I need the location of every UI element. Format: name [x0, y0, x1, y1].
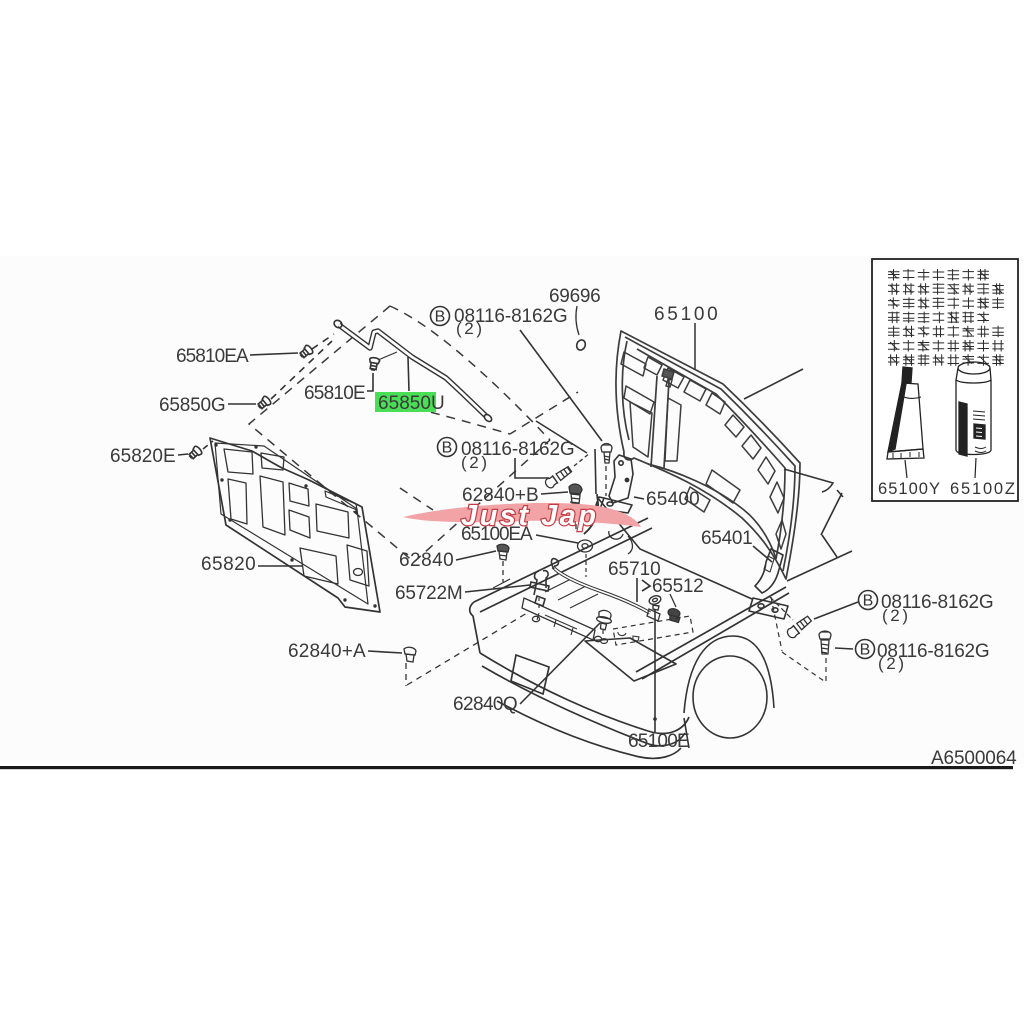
svg-text:62840+B: 62840+B [462, 485, 539, 506]
svg-text:65100Y: 65100Y [878, 480, 940, 498]
svg-text:62840+A: 62840+A [288, 641, 366, 662]
svg-text:65810EA: 65810EA [176, 346, 249, 367]
svg-text:B: B [863, 593, 874, 610]
svg-text:62840: 62840 [399, 550, 454, 571]
svg-text:B: B [435, 309, 446, 326]
svg-text:A6500064: A6500064 [931, 748, 1017, 769]
svg-text:65401: 65401 [701, 528, 753, 549]
svg-text:(2): (2) [882, 606, 908, 625]
svg-text:62840Q: 62840Q [453, 694, 518, 715]
svg-text:65810E: 65810E [304, 383, 366, 404]
svg-text:65512: 65512 [652, 576, 704, 597]
svg-text:B: B [860, 642, 871, 659]
svg-text:(2): (2) [461, 453, 487, 472]
svg-text:69696: 69696 [549, 286, 601, 307]
svg-text:65100E: 65100E [628, 731, 690, 752]
svg-text:B: B [442, 440, 453, 457]
svg-text:(2): (2) [456, 319, 482, 338]
svg-text:65100: 65100 [654, 304, 718, 325]
svg-text:65820: 65820 [201, 554, 256, 575]
svg-text:65722M: 65722M [395, 583, 463, 604]
svg-text:65400: 65400 [646, 489, 700, 510]
svg-text:65820E: 65820E [110, 446, 176, 467]
svg-text:(2): (2) [878, 654, 904, 673]
svg-text:65100EA: 65100EA [461, 524, 533, 545]
svg-text:65850U: 65850U [378, 393, 445, 414]
svg-text:65850G: 65850G [159, 395, 226, 416]
